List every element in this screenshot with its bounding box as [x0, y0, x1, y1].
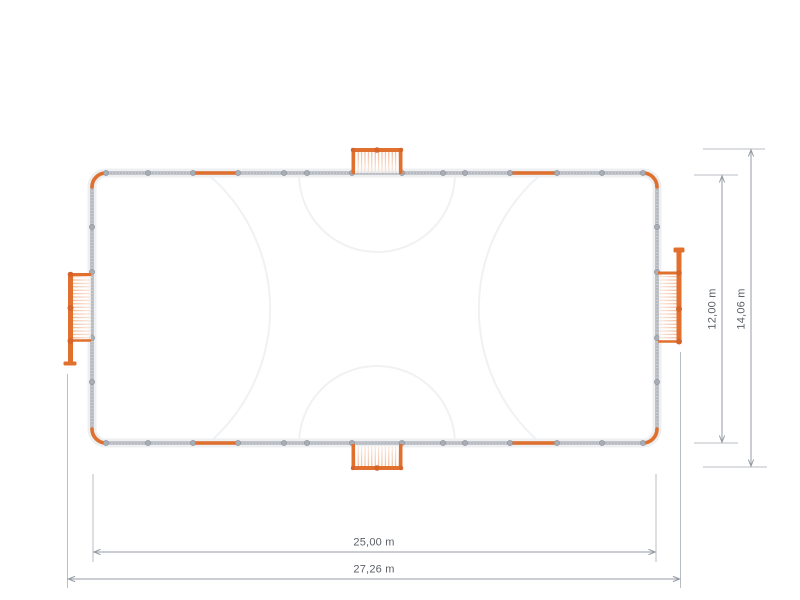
left-goal-area-arc — [208, 174, 271, 444]
top-goal-arc — [299, 174, 455, 252]
orange-wall-panels — [193, 173, 557, 443]
court-diagram: 25,00 m 27,26 m 12,00 m 14,06 m — [0, 0, 800, 600]
court-plan-canvas: 25,00 m 27,26 m 12,00 m 14,06 m — [0, 0, 800, 600]
dimension-court-width: 12,00 m — [707, 176, 725, 443]
wall-outline — [92, 173, 657, 443]
wall-posts — [89, 170, 659, 445]
right-goal — [658, 248, 685, 345]
top-goal — [351, 147, 403, 174]
overall-width-label: 14,06 m — [736, 288, 748, 329]
court-width-label: 12,00 m — [707, 288, 719, 329]
overall-length-label: 27,26 m — [353, 564, 394, 576]
court-markings — [208, 174, 542, 444]
corner-segments — [92, 173, 657, 443]
dimension-overall-width: 14,06 m — [736, 150, 754, 467]
court-walls — [92, 173, 657, 443]
court-length-label: 25,00 m — [353, 537, 394, 549]
left-goal — [64, 272, 92, 366]
right-goal-area-arc — [479, 174, 542, 444]
bottom-goal-arc — [299, 366, 455, 444]
extension-lines — [68, 149, 768, 588]
dimension-overall-length: 27,26 m — [68, 564, 680, 582]
dimension-court-length: 25,00 m — [94, 537, 656, 555]
bottom-goal — [351, 444, 403, 471]
